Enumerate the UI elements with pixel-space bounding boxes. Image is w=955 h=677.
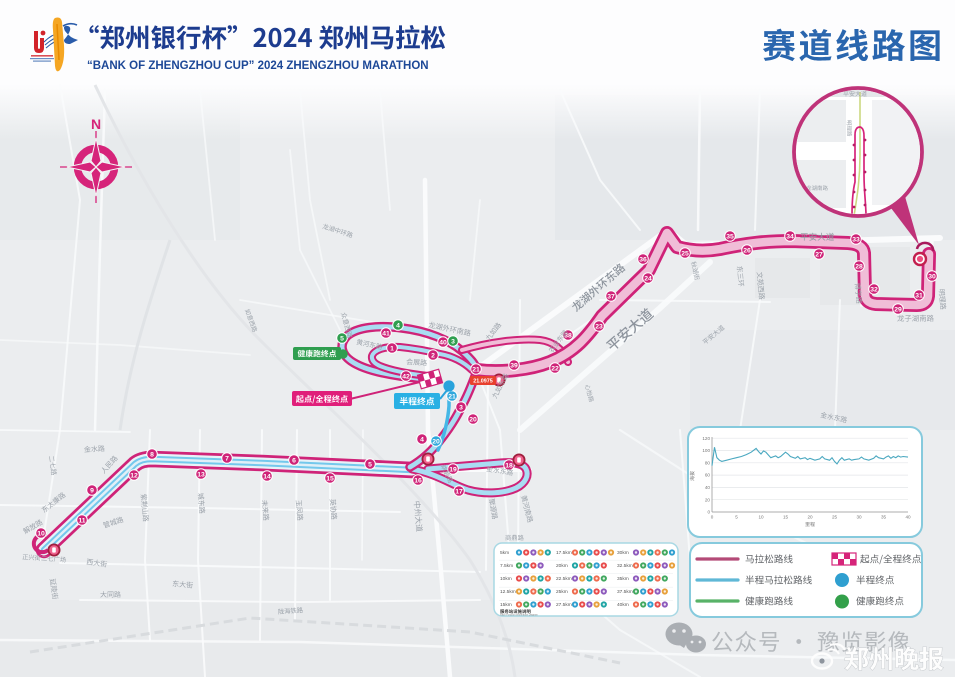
svg-text:34: 34	[786, 233, 794, 240]
svg-text:10: 10	[37, 530, 45, 537]
svg-text:20: 20	[705, 497, 711, 502]
svg-text:24: 24	[644, 275, 652, 282]
svg-text:40: 40	[439, 339, 447, 346]
svg-text:40km: 40km	[617, 602, 629, 608]
svg-text:36: 36	[639, 256, 647, 263]
svg-text:37: 37	[607, 293, 615, 300]
svg-text:40: 40	[705, 485, 711, 490]
svg-text:N: N	[91, 116, 101, 132]
svg-text:27.5km: 27.5km	[556, 602, 572, 608]
svg-text:5km: 5km	[500, 550, 509, 556]
svg-text:30: 30	[928, 273, 936, 280]
svg-text:7: 7	[225, 455, 229, 462]
svg-text:60: 60	[705, 473, 711, 478]
svg-text:27: 27	[815, 251, 823, 258]
svg-text:21.0975: 21.0975	[473, 379, 493, 385]
svg-text:19: 19	[449, 466, 457, 473]
svg-text:31: 31	[915, 292, 923, 299]
svg-text:3: 3	[459, 404, 463, 411]
svg-text:30km: 30km	[617, 550, 629, 556]
svg-text:5: 5	[735, 515, 738, 520]
svg-text:15: 15	[326, 475, 334, 482]
svg-text:29: 29	[894, 306, 902, 313]
svg-text:80: 80	[705, 460, 711, 465]
svg-text:41: 41	[382, 330, 390, 337]
svg-text:42: 42	[402, 373, 410, 380]
svg-text:21: 21	[448, 393, 456, 400]
svg-text:40: 40	[905, 515, 911, 520]
svg-text:5: 5	[340, 335, 344, 342]
svg-text:26: 26	[743, 247, 751, 254]
svg-text:17: 17	[455, 488, 463, 495]
svg-text:1: 1	[390, 345, 394, 352]
svg-text:5: 5	[368, 461, 372, 468]
svg-text:8: 8	[150, 451, 154, 458]
svg-text:23: 23	[595, 323, 603, 330]
svg-text:15: 15	[783, 515, 789, 520]
svg-text:20: 20	[432, 438, 440, 445]
svg-text:35km: 35km	[617, 576, 629, 582]
svg-text:13: 13	[197, 471, 205, 478]
svg-text:10: 10	[758, 515, 764, 520]
svg-text:16: 16	[414, 477, 422, 484]
svg-text:25km: 25km	[556, 589, 568, 595]
svg-text:35: 35	[881, 515, 887, 520]
svg-text:20km: 20km	[556, 563, 568, 569]
svg-text:100: 100	[702, 448, 710, 453]
svg-text:0: 0	[711, 515, 714, 520]
svg-text:32: 32	[870, 286, 878, 293]
svg-text:4: 4	[396, 322, 400, 329]
svg-text:11: 11	[78, 517, 85, 524]
svg-text:20: 20	[807, 515, 813, 520]
svg-text:7.5km: 7.5km	[500, 563, 513, 569]
svg-text:22: 22	[551, 365, 559, 372]
svg-text:4: 4	[420, 436, 424, 443]
svg-text:18: 18	[505, 462, 513, 469]
svg-text:20: 20	[469, 416, 477, 423]
svg-text:15km: 15km	[500, 602, 512, 608]
svg-text:3: 3	[451, 338, 455, 345]
svg-text:39: 39	[510, 362, 518, 369]
svg-text:Race Function Information Diag: Race Function Information Diagram	[500, 614, 538, 617]
svg-text:14: 14	[263, 473, 271, 480]
svg-text:2: 2	[431, 352, 435, 359]
svg-text:10km: 10km	[500, 576, 512, 582]
svg-text:12: 12	[130, 472, 138, 479]
svg-text:32.5km: 32.5km	[617, 563, 633, 569]
svg-text:37.5km: 37.5km	[617, 589, 633, 595]
svg-text:30: 30	[856, 515, 862, 520]
svg-text:9: 9	[90, 487, 94, 494]
svg-text:120: 120	[702, 436, 710, 441]
svg-text:33: 33	[852, 236, 860, 243]
svg-text:17.5km: 17.5km	[556, 550, 572, 556]
svg-text:“BANK OF ZHENGZHOU CUP” 2024 Z: “BANK OF ZHENGZHOU CUP” 2024 ZHENGZHOU M…	[87, 60, 429, 72]
svg-text:22.5km: 22.5km	[556, 576, 572, 582]
svg-text:28: 28	[855, 263, 863, 270]
svg-text:12.5km: 12.5km	[500, 589, 516, 595]
svg-text:25: 25	[832, 515, 838, 520]
svg-text:25: 25	[681, 250, 689, 257]
svg-text:6: 6	[292, 457, 296, 464]
svg-text:35: 35	[726, 233, 734, 240]
svg-text:21: 21	[472, 366, 480, 373]
